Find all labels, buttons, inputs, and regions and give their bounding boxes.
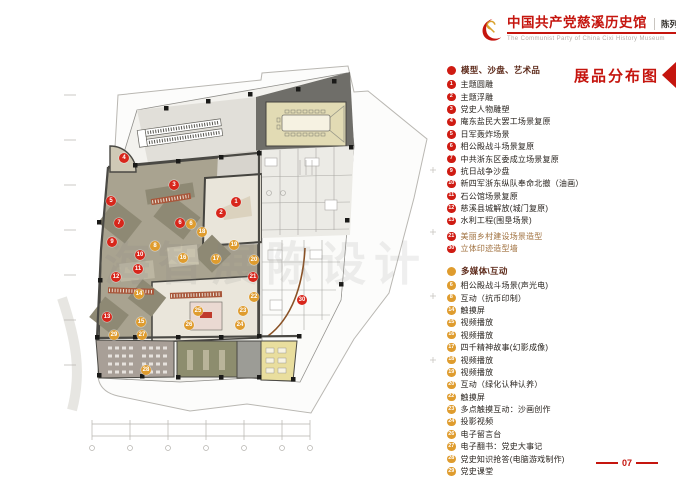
legend-item-badge: 10 xyxy=(447,180,456,189)
legend-item-badge: 15 xyxy=(447,319,456,328)
legend-item-label: 相公殿战斗场景(声光电) xyxy=(461,280,549,291)
legend-item: 16视频播放 xyxy=(447,329,659,341)
legend-group: 多媒体\互动6相公殿战斗场景(声光电)8互动（抗币印制）14触摸屏15视频播放1… xyxy=(447,265,659,478)
legend-item: 1主题圆雕 xyxy=(447,79,659,91)
legend-item-badge: 6 xyxy=(447,281,456,290)
legend-item: 5日军轰炸场景 xyxy=(447,128,659,140)
legend-item: 4庵东盐民大罢工场景复原 xyxy=(447,116,659,128)
legend-item-badge: 8 xyxy=(447,294,456,303)
legend-item-badge: 2 xyxy=(447,93,456,102)
party-emblem-icon xyxy=(479,17,504,42)
legend-item-badge: 22 xyxy=(447,393,456,402)
legend-item-badge: 26 xyxy=(447,430,456,439)
map-title-arrow-icon xyxy=(662,62,676,88)
page-number-value: 07 xyxy=(622,458,632,468)
legend-item-label: 互动（抗币印制） xyxy=(461,293,527,304)
legend-item: 23多点触摸互动：沙画创作 xyxy=(447,403,659,415)
legend-item-badge: 27 xyxy=(447,442,456,451)
legend-group-label: 模型、沙盘、艺术品 xyxy=(461,64,540,76)
legend-item-badge: 21 xyxy=(447,232,456,241)
title-divider xyxy=(654,18,655,30)
legend-item-badge: 28 xyxy=(447,455,456,464)
legend-item: 2主题浮雕 xyxy=(447,91,659,103)
legend-item-badge: 4 xyxy=(447,118,456,127)
legend-item-badge: 5 xyxy=(447,130,456,139)
legend-item-badge: 29 xyxy=(447,467,456,476)
legend-group-header: 多媒体\互动 xyxy=(447,265,659,278)
legend-item-badge: 7 xyxy=(447,155,456,164)
legend-item-badge: 30 xyxy=(447,245,456,254)
legend-item: 27电子翻书：党史大事记 xyxy=(447,441,659,453)
legend-item-label: 党史知识抢答(电脑游戏制作) xyxy=(461,454,565,465)
legend-item-badge: 14 xyxy=(447,306,456,315)
legend-dot-icon xyxy=(447,267,456,276)
legend-item-label: 美丽乡村建设场景造型 xyxy=(461,231,543,242)
legend-item: 21美丽乡村建设场景造型 xyxy=(447,230,659,242)
legend-item-label: 投影视频 xyxy=(461,416,494,427)
legend-item-badge: 19 xyxy=(447,368,456,377)
legend-item-label: 相公殿战斗场景复原 xyxy=(461,141,535,152)
legend-item: 18视频播放 xyxy=(447,354,659,366)
legend-item-label: 抗日战争沙盘 xyxy=(461,166,510,177)
legend-item-label: 电子留言台 xyxy=(461,429,502,440)
exhibit-legend: 模型、沙盘、艺术品1主题圆雕2主题浮雕3党史人物雕塑4庵东盐民大罢工场景复原5日… xyxy=(447,64,659,478)
page-title-en: The Communist Party of China Cixi Histor… xyxy=(507,36,676,42)
legend-item: 19视频播放 xyxy=(447,366,659,378)
legend-item: 7中共浙东区委成立场景复原 xyxy=(447,153,659,165)
legend-item-badge: 12 xyxy=(447,204,456,213)
page-subtitle: 陈列布展设计施工方案 xyxy=(661,18,676,30)
legend-item: 12慈溪县城解放(城门复原) xyxy=(447,202,659,214)
legend-item-badge: 1 xyxy=(447,80,456,89)
legend-item-label: 触摸屏 xyxy=(461,392,486,403)
header: 中国共产党慈溪历史馆 陈列布展设计施工方案 The Communist Part… xyxy=(479,11,676,42)
classroom xyxy=(96,340,174,378)
legend-item-badge: 13 xyxy=(447,217,456,226)
page-number-dash xyxy=(636,462,658,464)
legend-item: 8互动（抗币印制） xyxy=(447,292,659,304)
legend-item-label: 多点触摸互动：沙画创作 xyxy=(461,404,551,415)
legend-item: 3党史人物雕塑 xyxy=(447,103,659,115)
legend-item: 20互动（绿化认种认养） xyxy=(447,379,659,391)
scene-platform-2 xyxy=(167,244,199,267)
legend-item: 30立体印迹造型墙 xyxy=(447,243,659,255)
legend-item-badge: 3 xyxy=(447,105,456,114)
legend-item: 6相公殿战斗场景(声光电) xyxy=(447,279,659,291)
legend-item-label: 新四军浙东纵队奉命北撤（油画） xyxy=(461,178,584,189)
conference-table xyxy=(282,115,330,131)
av-tag xyxy=(200,312,212,318)
legend-item-badge: 17 xyxy=(447,343,456,352)
legend-item-label: 视频播放 xyxy=(461,355,494,366)
legend-item-label: 水利工程(围垦场景) xyxy=(461,215,532,226)
legend-item: 22触摸屏 xyxy=(447,391,659,403)
legend-item: 24投影视频 xyxy=(447,416,659,428)
legend-item-label: 中共浙东区委成立场景复原 xyxy=(461,154,559,165)
legend-item: 10新四军浙东纵队奉命北撤（油画） xyxy=(447,178,659,190)
legend-item-label: 四千精神故事(幻影成像) xyxy=(461,342,549,353)
right-ticks xyxy=(430,167,436,363)
legend-item: 17四千精神故事(幻影成像) xyxy=(447,341,659,353)
legend-item-badge: 23 xyxy=(447,405,456,414)
multifunction-benches xyxy=(187,350,225,370)
legend-item-label: 触摸屏 xyxy=(461,305,486,316)
legend-item: 9抗日战争沙盘 xyxy=(447,165,659,177)
legend-item-label: 主题浮雕 xyxy=(461,92,494,103)
site-road xyxy=(62,298,77,410)
legend-item: 6相公殿战斗场景复原 xyxy=(447,140,659,152)
legend-item-label: 庵东盐民大罢工场景复原 xyxy=(461,116,551,127)
legend-item-label: 慈溪县城解放(城门复原) xyxy=(461,203,549,214)
legend-item-label: 视频播放 xyxy=(461,330,494,341)
legend-item-label: 党史课堂 xyxy=(461,466,494,477)
legend-item: 14触摸屏 xyxy=(447,304,659,316)
scene-platform xyxy=(119,260,155,281)
legend-item-badge: 24 xyxy=(447,418,456,427)
legend-item: 11石公馆场景复原 xyxy=(447,190,659,202)
legend-item-badge: 20 xyxy=(447,381,456,390)
legend-item-label: 党史人物雕塑 xyxy=(461,104,510,115)
legend-item: 13水利工程(围垦场景) xyxy=(447,215,659,227)
legend-group: 模型、沙盘、艺术品1主题圆雕2主题浮雕3党史人物雕塑4庵东盐民大罢工场景复原5日… xyxy=(447,64,659,255)
legend-dot-icon xyxy=(447,66,456,75)
legend-item: 15视频播放 xyxy=(447,317,659,329)
legend-group-label: 多媒体\互动 xyxy=(461,265,508,277)
legend-item-badge: 18 xyxy=(447,356,456,365)
legend-item-label: 主题圆雕 xyxy=(461,79,494,90)
office-room xyxy=(237,341,261,378)
legend-item-label: 电子翻书：党史大事记 xyxy=(461,441,543,452)
page-number-dash xyxy=(596,462,618,464)
legend-item-label: 日军轰炸场景 xyxy=(461,129,510,140)
page-title: 中国共产党慈溪历史馆 xyxy=(507,11,647,31)
legend-item-badge: 6 xyxy=(447,142,456,151)
legend-item-badge: 16 xyxy=(447,331,456,340)
legend-item-label: 视频播放 xyxy=(461,317,494,328)
legend-item-label: 石公馆场景复原 xyxy=(461,191,518,202)
legend-item-label: 立体印迹造型墙 xyxy=(461,243,518,254)
legend-item-label: 视频播放 xyxy=(461,367,494,378)
legend-item-label: 互动（绿化认种认养） xyxy=(461,379,543,390)
legend-item-badge: 9 xyxy=(447,167,456,176)
legend-item: 26电子留言台 xyxy=(447,428,659,440)
legend-group-header: 模型、沙盘、艺术品 xyxy=(447,64,659,77)
legend-item-badge: 11 xyxy=(447,192,456,201)
page-number: 07 xyxy=(596,458,658,468)
